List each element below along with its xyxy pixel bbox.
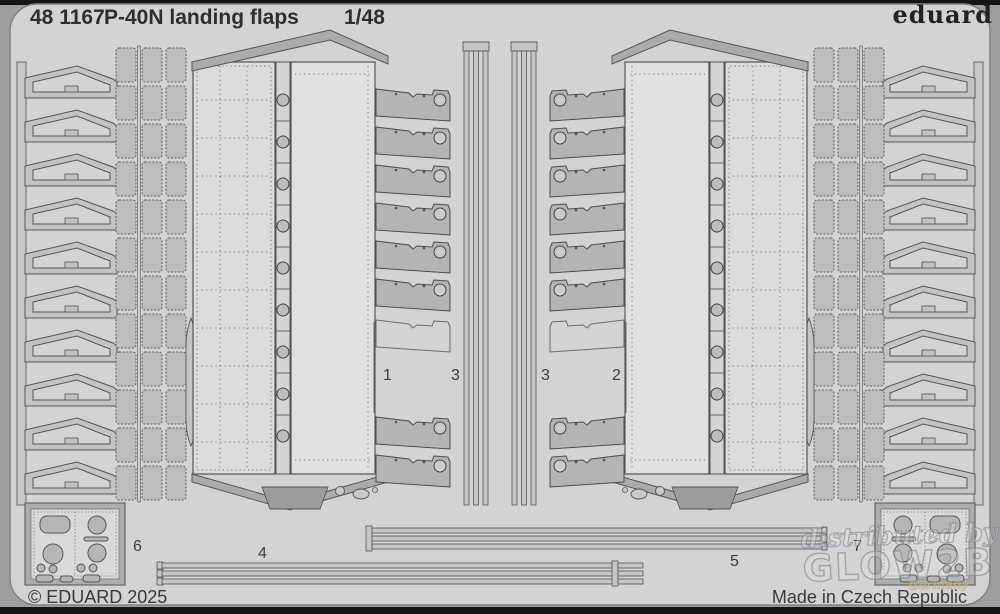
part-label-6: 6 (133, 538, 142, 555)
scale-label: 1/48 (344, 6, 385, 29)
product-title: P-40N landing flaps (104, 6, 299, 29)
part-label-3-left: 3 (451, 367, 460, 384)
part-label-4: 4 (258, 545, 267, 562)
bottom-edge-bar (0, 607, 1000, 614)
watermark-germany: Germany (908, 577, 971, 593)
part-label-1: 1 (383, 367, 392, 384)
photoetch-sheet-scan: 1 3 3 2 6 4 5 7 48 1167 P-40N landing fl… (0, 0, 1000, 614)
photoetch-sheet-image: 1 3 3 2 6 4 5 7 48 1167 P-40N landing fl… (0, 0, 1000, 614)
catalog-number: 48 1167 (30, 6, 105, 29)
part-label-2: 2 (612, 367, 621, 384)
part-label-3-right: 3 (541, 367, 550, 384)
copyright-text: © EDUARD 2025 (28, 587, 167, 607)
eduard-logo: eduard (893, 0, 993, 29)
hinge-strips-part-5 (366, 526, 827, 551)
part-label-5: 5 (730, 553, 739, 570)
hinge-strips-part-4 (157, 561, 643, 586)
